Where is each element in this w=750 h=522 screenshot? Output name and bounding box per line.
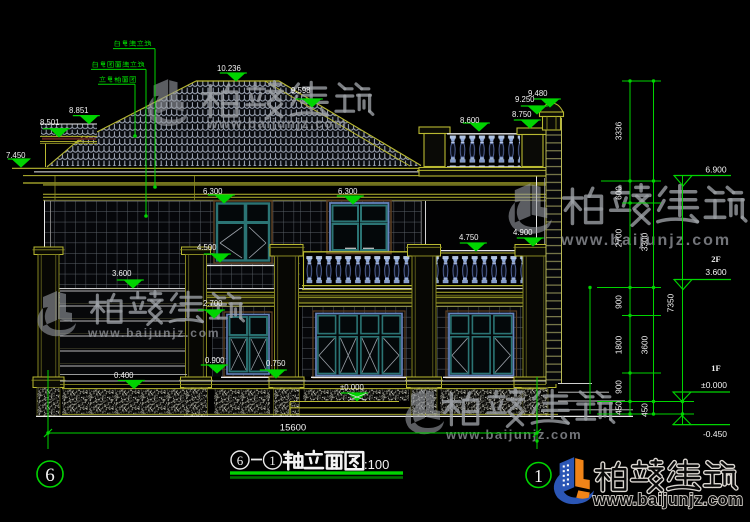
svg-text:0.400: 0.400 bbox=[114, 371, 134, 380]
svg-text:8.750: 8.750 bbox=[512, 110, 532, 119]
svg-text:2F: 2F bbox=[711, 254, 720, 264]
svg-text:6: 6 bbox=[237, 453, 244, 468]
svg-text:±0.000: ±0.000 bbox=[340, 383, 364, 392]
svg-text:7350: 7350 bbox=[666, 293, 676, 312]
svg-text:0.900: 0.900 bbox=[205, 356, 225, 365]
svg-text:4.500: 4.500 bbox=[197, 243, 217, 252]
svg-text:6.900: 6.900 bbox=[705, 165, 727, 175]
svg-text:www.baijunjz.com: www.baijunjz.com bbox=[445, 427, 582, 442]
svg-text:15600: 15600 bbox=[280, 423, 306, 434]
svg-text:8.501: 8.501 bbox=[40, 118, 60, 127]
svg-text:10.236: 10.236 bbox=[217, 64, 241, 73]
svg-text:1F: 1F bbox=[711, 363, 720, 373]
svg-text:3.600: 3.600 bbox=[705, 267, 727, 277]
svg-text:-0.450: -0.450 bbox=[703, 429, 727, 439]
svg-text:4.900: 4.900 bbox=[513, 228, 533, 237]
svg-text:2700: 2700 bbox=[614, 228, 624, 247]
svg-text:600: 600 bbox=[614, 186, 624, 200]
svg-text:6.300: 6.300 bbox=[338, 187, 358, 196]
svg-text:1: 1 bbox=[534, 466, 543, 486]
svg-text:www.baijunjz.com: www.baijunjz.com bbox=[87, 326, 220, 340]
svg-text:6.300: 6.300 bbox=[203, 187, 223, 196]
svg-text:6: 6 bbox=[45, 465, 55, 486]
svg-text:3.600: 3.600 bbox=[112, 269, 132, 278]
svg-text:9.250: 9.250 bbox=[515, 95, 535, 104]
svg-text:2.700: 2.700 bbox=[203, 299, 223, 308]
svg-text:900: 900 bbox=[614, 295, 624, 309]
svg-text:8.600: 8.600 bbox=[460, 116, 480, 125]
svg-text:3300: 3300 bbox=[640, 232, 650, 251]
svg-text:900: 900 bbox=[614, 380, 624, 394]
svg-text:9.598: 9.598 bbox=[291, 86, 311, 95]
svg-text:1: 1 bbox=[269, 453, 276, 468]
svg-text:3336: 3336 bbox=[614, 121, 624, 140]
svg-text:1800: 1800 bbox=[614, 335, 624, 354]
svg-text:www.baijunjz.com: www.baijunjz.com bbox=[206, 116, 348, 131]
svg-text:450: 450 bbox=[614, 401, 624, 415]
svg-text::100: :100 bbox=[364, 457, 389, 472]
svg-text:±0.000: ±0.000 bbox=[701, 380, 727, 390]
svg-text:3600: 3600 bbox=[640, 335, 650, 354]
svg-text:450: 450 bbox=[640, 403, 650, 417]
svg-text:8.851: 8.851 bbox=[69, 106, 89, 115]
svg-text:4.750: 4.750 bbox=[459, 233, 479, 242]
svg-text:7.450: 7.450 bbox=[6, 151, 26, 160]
svg-text:0.750: 0.750 bbox=[266, 359, 286, 368]
svg-text:www.baijunjz.com: www.baijunjz.com bbox=[592, 491, 743, 509]
